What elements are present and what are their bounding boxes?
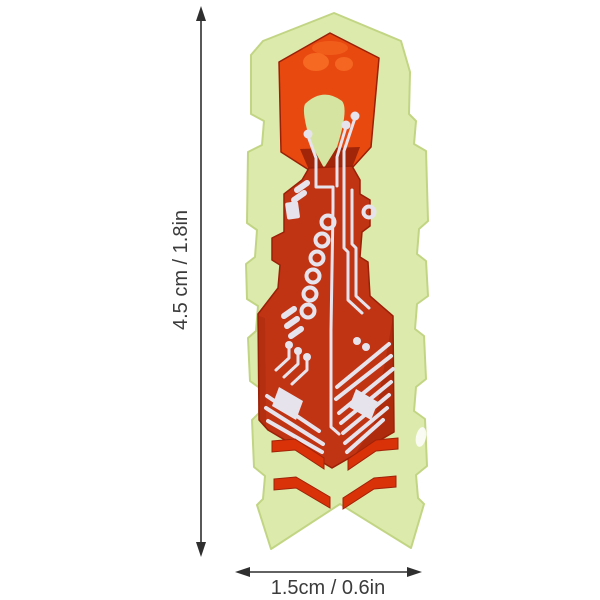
circuit-pad-block: [285, 201, 300, 220]
head-highlight: [335, 57, 353, 71]
dimension-width: 1.5cm / 0.6in: [235, 567, 422, 599]
head-highlight: [312, 41, 348, 55]
circuit-pad: [353, 337, 361, 345]
product-screenshot: 4.5 cm / 1.8in 1.5cm / 0.6in: [0, 0, 600, 600]
circuit-pad: [362, 343, 370, 351]
bug-toy: [246, 13, 428, 549]
width-arrow-left: [235, 567, 250, 577]
dimension-height: 4.5 cm / 1.8in: [170, 6, 206, 557]
width-arrow-right: [407, 567, 422, 577]
head-highlight: [303, 53, 329, 71]
product-image: 4.5 cm / 1.8in 1.5cm / 0.6in: [0, 0, 600, 600]
height-label: 4.5 cm / 1.8in: [170, 210, 192, 330]
height-arrow-bottom: [196, 542, 206, 557]
height-arrow-top: [196, 6, 206, 21]
width-label: 1.5cm / 0.6in: [271, 577, 386, 599]
shield-shadow-left: [259, 316, 266, 428]
